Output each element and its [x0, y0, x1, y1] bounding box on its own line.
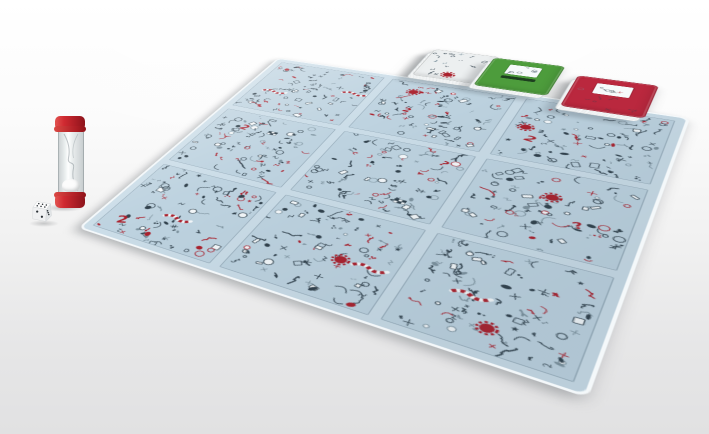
- svg-text:3: 3: [182, 168, 187, 172]
- svg-text:?: ?: [500, 99, 509, 101]
- die-faces: [30, 200, 56, 226]
- svg-text:★: ★: [302, 85, 310, 88]
- svg-text:?: ?: [334, 236, 343, 240]
- svg-text:2: 2: [286, 161, 291, 164]
- svg-text:★: ★: [573, 279, 586, 286]
- svg-text:!: !: [205, 187, 212, 189]
- product-photo-stage: ♪★!!★♪3 !?!!!33?2 ★2!!2★2?2 22!22 !!32? …: [0, 0, 709, 434]
- die: [30, 200, 56, 226]
- svg-text:3: 3: [150, 178, 157, 181]
- svg-text:♪: ♪: [357, 76, 367, 78]
- timer-glass-tube: [58, 132, 84, 193]
- timer-sand-pile: [62, 179, 80, 192]
- svg-text:!: !: [393, 102, 399, 107]
- svg-text:♪: ♪: [526, 230, 537, 235]
- svg-text:!: !: [418, 288, 428, 293]
- svg-text:★: ★: [559, 127, 567, 132]
- svg-text:♪: ♪: [349, 277, 359, 280]
- svg-text:2: 2: [269, 154, 280, 160]
- svg-text:!: !: [353, 193, 361, 195]
- svg-text:!: !: [609, 161, 611, 165]
- svg-text:♪: ♪: [539, 320, 551, 326]
- svg-text:★: ★: [246, 198, 255, 203]
- svg-text:2: 2: [536, 129, 545, 135]
- svg-text:!: !: [253, 128, 257, 132]
- svg-text:2: 2: [400, 106, 415, 114]
- svg-text:2: 2: [114, 214, 130, 226]
- svg-text:2: 2: [539, 361, 554, 369]
- svg-text:3: 3: [308, 83, 316, 87]
- svg-text:2: 2: [539, 142, 548, 144]
- svg-text:★: ★: [507, 325, 523, 332]
- svg-text:?: ?: [570, 221, 585, 232]
- sand-timer: [54, 116, 86, 208]
- svg-text:?: ?: [437, 248, 447, 255]
- svg-text:2: 2: [519, 134, 540, 144]
- svg-text:3: 3: [464, 102, 474, 106]
- svg-text:2: 2: [497, 340, 509, 345]
- timer-bottom-cap: [55, 196, 85, 208]
- svg-text:!: !: [449, 237, 456, 245]
- svg-text:♪: ♪: [262, 91, 269, 95]
- svg-text:★: ★: [192, 173, 204, 179]
- svg-text:★: ★: [501, 136, 514, 142]
- svg-text:?: ?: [435, 160, 454, 168]
- svg-text:2: 2: [319, 181, 325, 185]
- svg-text:2: 2: [532, 151, 542, 155]
- svg-text:♪: ♪: [248, 211, 252, 215]
- svg-text:?: ?: [629, 111, 638, 113]
- svg-text:?: ?: [644, 160, 654, 164]
- svg-text:!: !: [604, 166, 613, 170]
- svg-text:!: !: [466, 110, 476, 114]
